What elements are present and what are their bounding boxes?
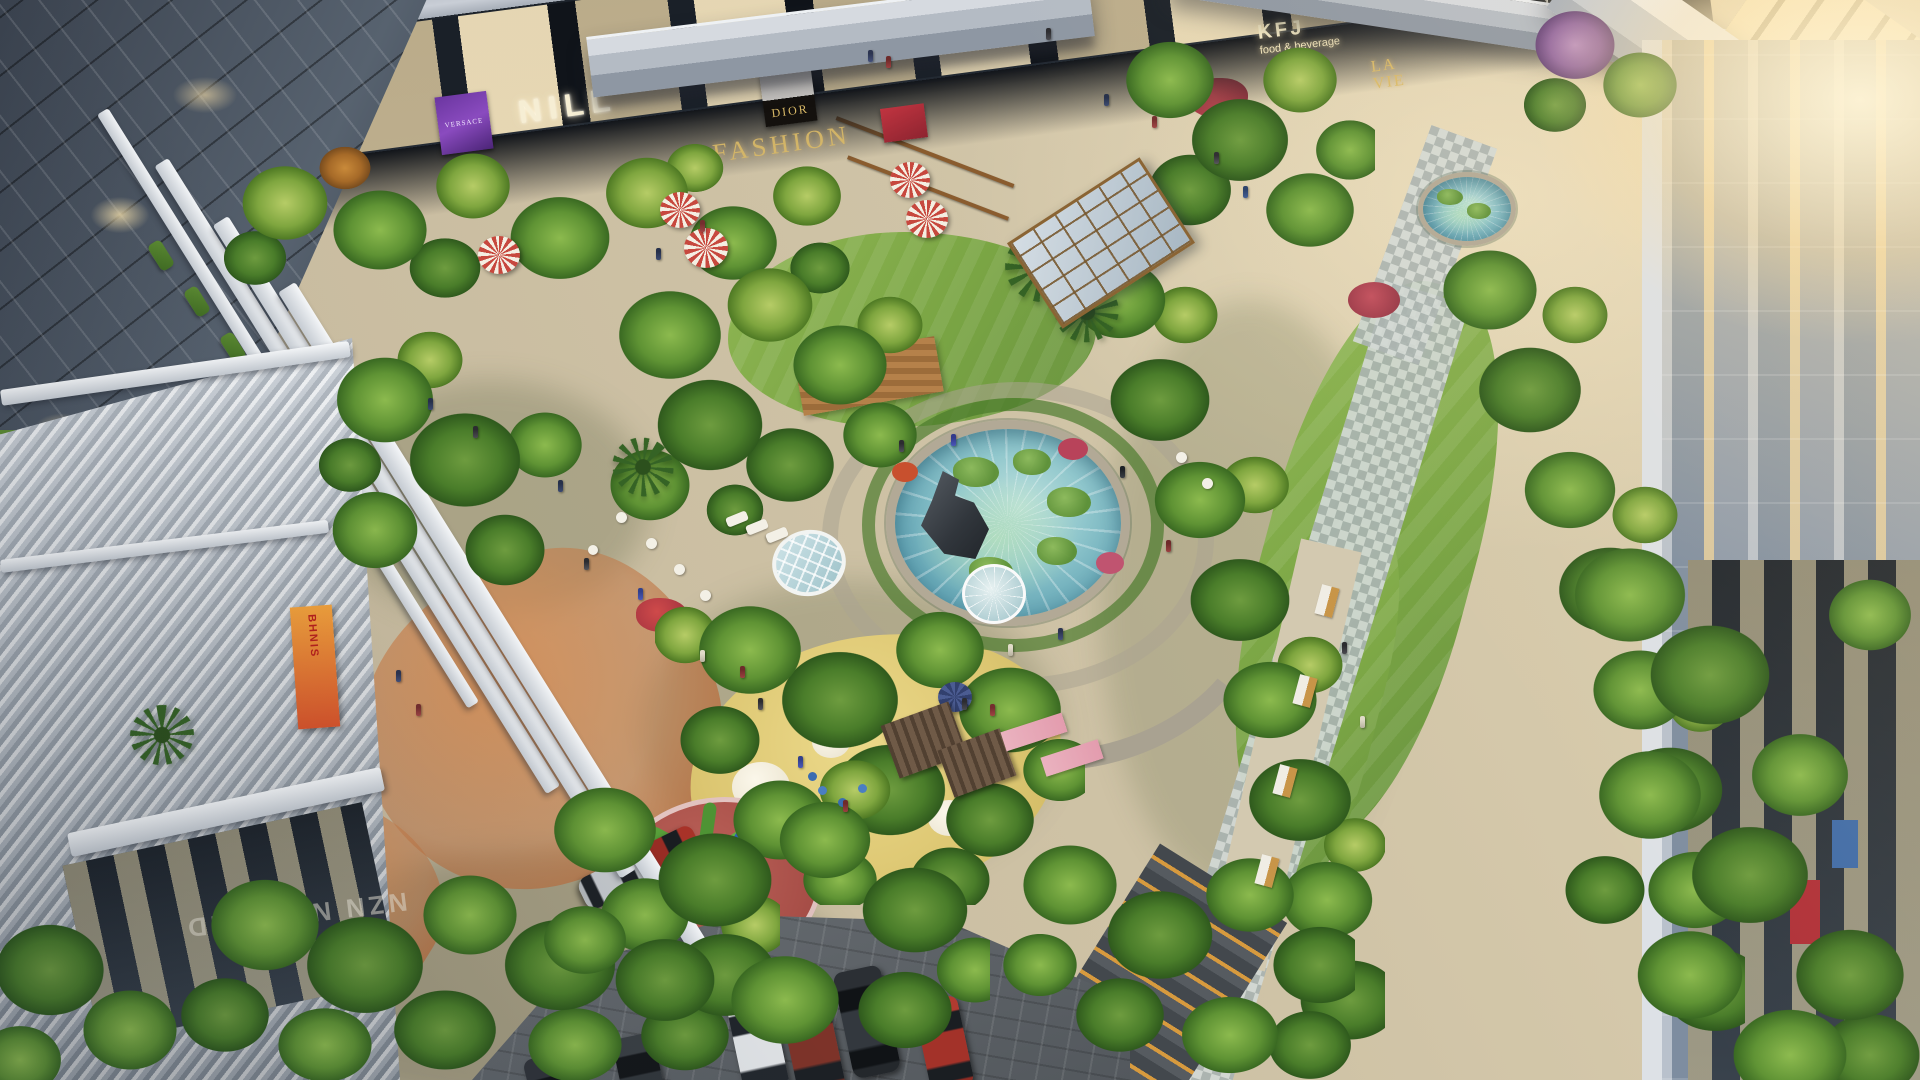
pedestrian: [951, 434, 956, 446]
sand-circle: [928, 800, 970, 836]
striped-umbrella: [660, 192, 700, 228]
aerial-courtyard-scene: VERSACE NILL DIOR FASHION KFJ food & bev…: [0, 0, 1920, 1080]
striped-umbrella: [906, 200, 948, 238]
cafe-table: [674, 564, 685, 575]
play-stool: [858, 784, 867, 793]
lavie-sign: LA VIE: [1370, 52, 1434, 93]
cafe-table: [646, 538, 657, 549]
pedestrian: [1214, 152, 1219, 164]
shop-display-red: [1790, 880, 1820, 944]
striped-umbrella: [890, 162, 930, 198]
pedestrian: [843, 800, 848, 812]
pedestrian: [396, 670, 401, 682]
flower-bougainvillea: [892, 462, 918, 482]
pedestrian: [1342, 642, 1347, 654]
flower-bed: [1096, 552, 1124, 574]
cafe-table: [616, 512, 627, 523]
pedestrian: [638, 588, 643, 600]
red-shop-panel: [880, 103, 928, 142]
pedestrian: [1360, 716, 1365, 728]
pedestrian: [700, 220, 705, 232]
pedestrian: [758, 698, 763, 710]
pedestrian: [899, 440, 904, 452]
versace-panel: VERSACE: [434, 91, 493, 155]
pedestrian: [656, 248, 661, 260]
pedestrian: [740, 666, 745, 678]
pedestrian: [428, 398, 433, 410]
banner-vertical-label: BHNIS: [305, 606, 325, 729]
cafe-table: [1176, 452, 1187, 463]
cafe-table: [588, 545, 598, 555]
flower-bougainvillea: [862, 438, 896, 464]
tower-base-shops-right: [1688, 560, 1920, 1080]
pedestrian: [1120, 466, 1125, 478]
pedestrian: [584, 558, 589, 570]
shop-display-blue: [1832, 820, 1858, 868]
sand-circle: [812, 726, 850, 758]
pond-hedge-ring: [862, 398, 1164, 652]
versace-label: VERSACE: [444, 116, 484, 129]
small-garden-pond: [1418, 172, 1516, 246]
pedestrian: [700, 650, 705, 662]
orange-banner: BHNIS: [290, 605, 340, 730]
pedestrian: [1152, 116, 1157, 128]
cafe-table: [1202, 478, 1213, 489]
pedestrian: [1104, 94, 1109, 106]
play-stool: [808, 772, 817, 781]
pedestrian: [990, 704, 995, 716]
flower-island-red: [636, 598, 688, 632]
lily-pads: [1437, 189, 1463, 205]
pedestrian: [416, 704, 421, 716]
flower-bed-red: [1058, 438, 1088, 460]
sand-circle: [862, 690, 884, 708]
play-stool: [818, 786, 827, 795]
striped-umbrella: [478, 236, 520, 274]
cafe-table: [700, 590, 711, 601]
pedestrian: [1046, 28, 1051, 40]
pedestrian: [1243, 186, 1248, 198]
pedestrian: [798, 756, 803, 768]
pedestrian: [1058, 628, 1063, 640]
pedestrian: [886, 56, 891, 68]
pedestrian: [558, 480, 563, 492]
pedestrian: [1008, 644, 1013, 656]
pedestrian: [473, 426, 478, 438]
flower-bed-right: [1348, 282, 1400, 318]
pedestrian: [962, 698, 967, 710]
striped-umbrella: [684, 228, 728, 268]
pedestrian: [868, 50, 873, 62]
lily-pads: [1467, 203, 1491, 219]
pedestrian: [1166, 540, 1171, 552]
